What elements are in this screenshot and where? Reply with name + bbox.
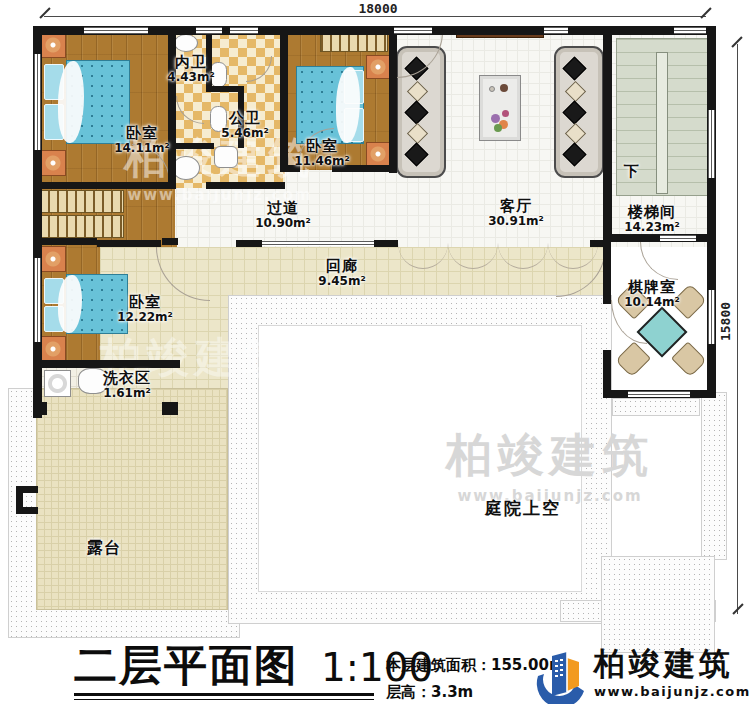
room-name: 露台	[54, 539, 154, 557]
room-name: 客厅	[466, 198, 566, 215]
floor-height-note: 层高：3.3m	[386, 683, 473, 702]
room-label-living: 客厅 30.91m²	[466, 198, 566, 229]
dimension-top-line	[44, 16, 706, 17]
window	[628, 391, 690, 397]
title-block: 二层平面图 1:100	[74, 644, 433, 687]
window	[708, 290, 715, 344]
table-decor	[500, 84, 508, 92]
room-area: 11.46m²	[272, 155, 372, 169]
nightstand	[40, 246, 66, 272]
window	[84, 27, 148, 34]
room-area: 14.23m²	[602, 221, 702, 235]
wall	[16, 507, 38, 514]
room-name: 回廊	[292, 258, 392, 275]
dimension-tick	[732, 603, 743, 614]
room-label-corridor: 回廊 9.45m²	[292, 258, 392, 289]
wall	[603, 350, 611, 398]
wall	[33, 360, 180, 368]
wall	[236, 240, 262, 247]
company-logo-icon	[534, 646, 588, 704]
window	[34, 258, 41, 342]
window	[674, 27, 706, 34]
courtyard-void	[258, 325, 582, 592]
room-label-hallway: 过道 10.90m²	[233, 200, 333, 231]
room-name: 公卫	[210, 110, 280, 127]
window	[708, 110, 715, 178]
room-area: 5.46m²	[210, 127, 280, 141]
room-label-bedroom-c: 卧室 12.22m²	[95, 294, 195, 325]
chair	[615, 341, 651, 377]
nightstand	[366, 55, 390, 79]
wall	[374, 240, 398, 247]
table-decor	[489, 86, 495, 92]
room-area: 14.11m²	[92, 142, 192, 156]
wall	[389, 26, 397, 173]
window	[394, 27, 432, 34]
room-name: 内卫	[156, 54, 226, 71]
room-label-bath-public: 公卫 5.46m²	[210, 110, 280, 141]
room-label-laundry: 洗衣区 1.61m²	[77, 370, 177, 401]
room-label-stairwell: 楼梯间 14.23m²	[602, 204, 702, 235]
window	[196, 27, 222, 34]
wall	[162, 402, 178, 415]
room-name: 洗衣区	[77, 370, 177, 387]
room-name: 棋牌室	[602, 279, 702, 296]
bathroom-sink	[214, 146, 238, 168]
room-label-bedroom-a: 卧室 14.11m²	[92, 125, 192, 156]
room-area: 9.45m²	[292, 275, 392, 289]
room-name: 卧室	[95, 294, 195, 311]
wardrobe	[38, 190, 124, 213]
window	[660, 235, 696, 241]
dimension-right-label: 15800	[718, 299, 733, 345]
room-label-terrace: 露台	[54, 539, 154, 557]
nightstand	[40, 32, 66, 58]
room-label-chess: 棋牌室 10.14m²	[602, 279, 702, 310]
window	[230, 27, 258, 34]
title-underline	[74, 699, 374, 700]
wall	[33, 238, 97, 245]
wall	[33, 182, 176, 189]
dimension-top-label: 18000	[350, 1, 406, 16]
walkway-hatch	[612, 398, 700, 416]
window	[544, 27, 568, 34]
room-name: 过道	[233, 200, 333, 217]
washing-machine	[44, 370, 71, 397]
table-flowers	[494, 124, 502, 132]
dimension-tick	[700, 7, 711, 18]
roof-hatch	[601, 556, 715, 653]
company-name: 柏竣建筑	[594, 648, 734, 679]
wall	[162, 238, 178, 245]
stair-rail	[656, 52, 668, 194]
window	[34, 54, 41, 150]
table-flowers	[502, 110, 509, 117]
room-area: 12.22m²	[95, 311, 195, 325]
room-area: 10.90m²	[233, 217, 333, 231]
company-website: www.baijunjz.com	[594, 684, 750, 699]
chair	[671, 341, 707, 377]
stair-direction-text: 下	[624, 162, 640, 180]
nightstand	[40, 336, 66, 362]
stair-direction-label: 下	[618, 162, 646, 180]
terrace-floor	[36, 388, 228, 610]
room-area: 4.43m²	[156, 71, 226, 85]
door-arc	[640, 242, 678, 280]
wardrobe	[38, 215, 124, 238]
room-label-courtyard: 庭院上空	[453, 499, 593, 519]
window	[262, 241, 374, 246]
floor-plan-sheet: 18000 15800 柏竣建筑 www.baijunjz.com 柏竣建筑 柏…	[0, 0, 750, 711]
nightstand	[40, 150, 66, 176]
wall	[168, 26, 176, 189]
room-area: 1.61m²	[77, 387, 177, 401]
bathroom-sink	[174, 34, 198, 52]
room-name: 楼梯间	[602, 204, 702, 221]
title-underline	[74, 693, 374, 696]
room-name: 庭院上空	[453, 499, 593, 519]
room-name: 卧室	[272, 138, 372, 155]
room-name: 卧室	[92, 125, 192, 142]
wall	[33, 402, 47, 415]
room-area: 30.91m²	[466, 215, 566, 229]
wall	[206, 182, 285, 189]
walkway-hatch	[701, 392, 727, 560]
wall	[97, 240, 161, 247]
room-label-bath-inner: 内卫 4.43m²	[156, 54, 226, 85]
plan-title: 二层平面图	[74, 644, 299, 687]
dimension-right-line	[737, 44, 738, 614]
bathroom-sink	[172, 156, 200, 180]
room-area: 10.14m²	[602, 296, 702, 310]
room-label-bedroom-b: 卧室 11.46m²	[272, 138, 372, 169]
